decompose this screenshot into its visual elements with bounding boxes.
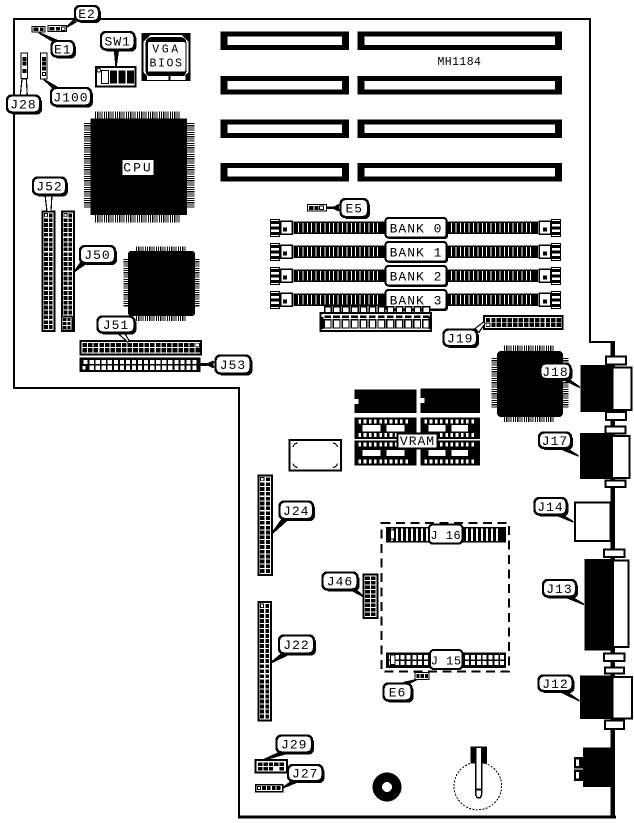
- svg-text:J29: J29: [281, 738, 307, 753]
- svg-text:SW1: SW1: [105, 34, 131, 49]
- svg-text:E6: E6: [389, 686, 407, 701]
- svg-text:J19: J19: [447, 331, 473, 346]
- svg-text:BIOS: BIOS: [149, 58, 183, 71]
- svg-text:J53: J53: [220, 358, 246, 373]
- svg-text:J24: J24: [283, 504, 309, 519]
- svg-text:J12: J12: [542, 677, 568, 692]
- svg-text:J28: J28: [10, 98, 36, 113]
- svg-text:E1: E1: [54, 42, 72, 57]
- svg-text:BANK 0: BANK 0: [390, 222, 443, 237]
- svg-text:VGA: VGA: [152, 44, 181, 57]
- svg-text:J18: J18: [542, 365, 568, 380]
- svg-text:VRAM: VRAM: [400, 434, 435, 449]
- svg-text:E2: E2: [78, 7, 96, 22]
- svg-text:J22: J22: [283, 638, 309, 653]
- svg-text:J13: J13: [546, 582, 572, 597]
- svg-text:MH1184: MH1184: [438, 56, 482, 69]
- svg-text:BANK 2: BANK 2: [390, 270, 443, 285]
- svg-text:J17: J17: [542, 434, 568, 449]
- svg-text:J 16: J 16: [430, 529, 461, 543]
- svg-text:J100: J100: [53, 90, 88, 105]
- svg-text:E5: E5: [345, 202, 363, 217]
- svg-text:J52: J52: [36, 180, 62, 195]
- svg-text:BANK 1: BANK 1: [390, 246, 443, 261]
- svg-text:J 15: J 15: [431, 655, 462, 669]
- svg-text:J46: J46: [327, 575, 353, 590]
- svg-text:J14: J14: [537, 500, 563, 515]
- svg-text:J50: J50: [84, 248, 110, 263]
- svg-text:J27: J27: [292, 767, 318, 782]
- svg-text:J51: J51: [103, 318, 129, 333]
- svg-text:CPU: CPU: [123, 161, 152, 176]
